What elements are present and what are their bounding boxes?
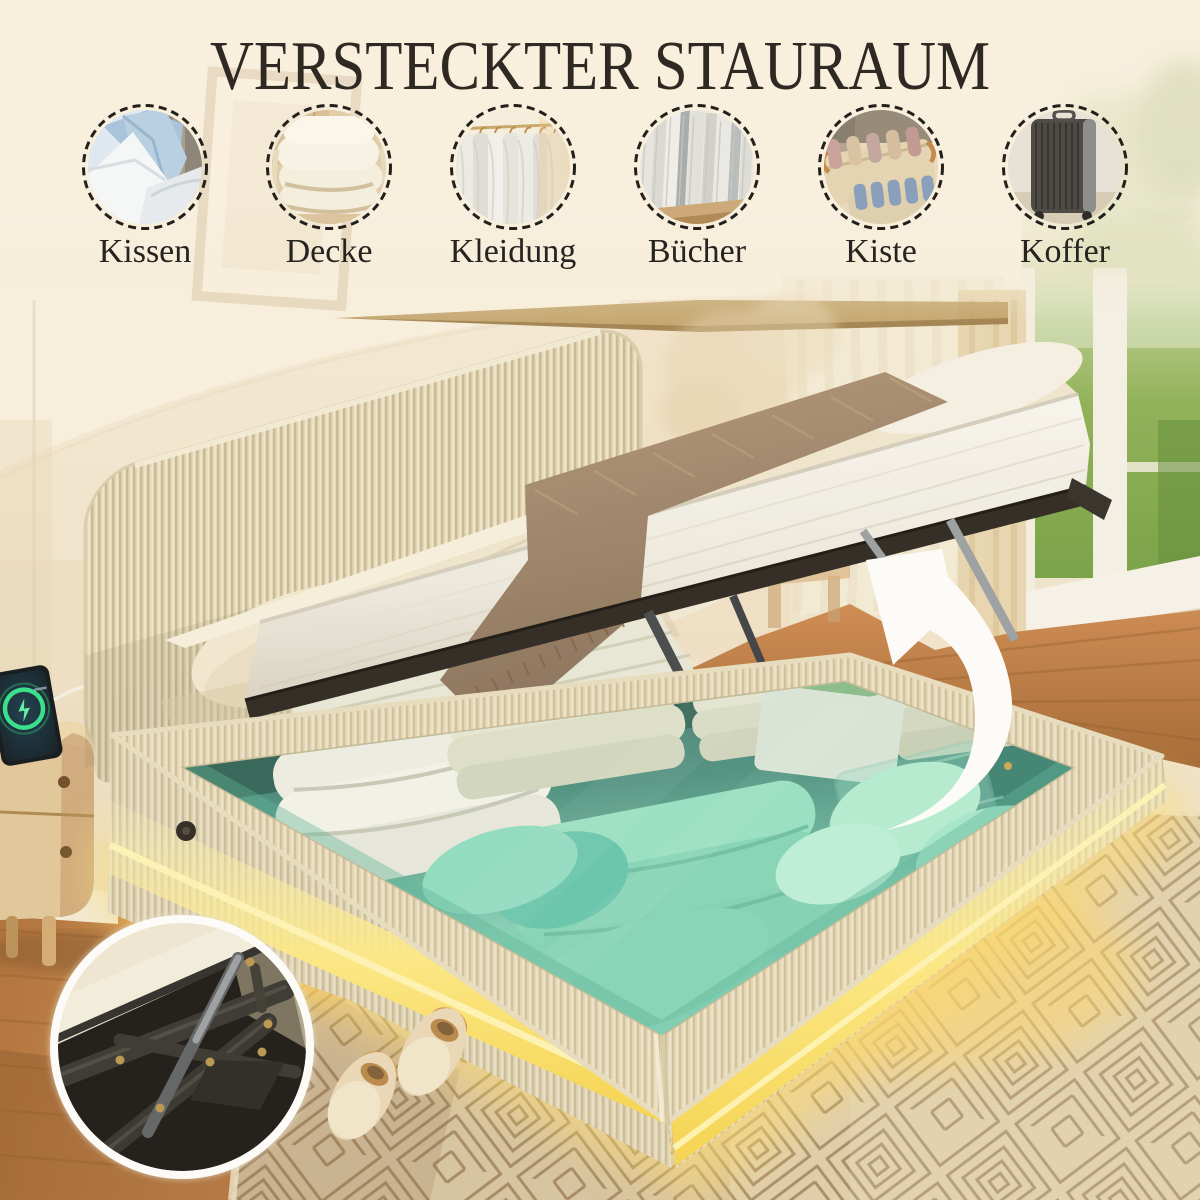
svg-text:VERSTECKTER STAURAUM: VERSTECKTER STAURAUM [210, 28, 990, 105]
svg-text:Koffer: Koffer [1020, 233, 1111, 270]
svg-text:Kissen: Kissen [99, 233, 192, 270]
svg-text:Kiste: Kiste [845, 233, 917, 270]
svg-text:Kleidung: Kleidung [450, 233, 577, 270]
svg-text:Bücher: Bücher [648, 233, 747, 270]
svg-text:Decke: Decke [286, 233, 373, 270]
